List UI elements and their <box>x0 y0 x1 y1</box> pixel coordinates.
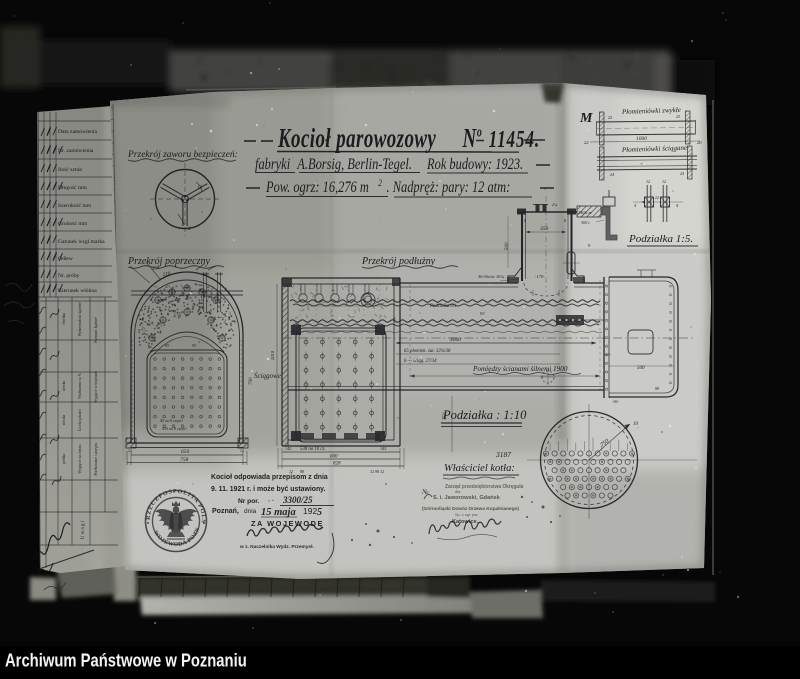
svg-text:M: M <box>579 111 593 126</box>
svg-text:Długość mm: Długość mm <box>58 185 87 191</box>
svg-text:o: o <box>477 124 482 140</box>
svg-text:-170-: -170- <box>535 274 545 279</box>
svg-text:12: 12 <box>128 448 132 453</box>
svg-text:538 na 10 cz.: 538 na 10 cz. <box>300 447 326 452</box>
svg-text:Przekrój podłużny: Przekrój podłużny <box>361 256 436 267</box>
svg-text:4000: 4000 <box>450 336 461 343</box>
svg-text:25: 25 <box>608 115 612 120</box>
svg-text:w z. Naczelnika Wydz. Przemysł: w z. Naczelnika Wydz. Przemysł. <box>239 544 314 550</box>
svg-text:145: 145 <box>380 446 386 451</box>
svg-text:36-Nitów 16¼: 36-Nitów 16¼ <box>478 274 504 279</box>
svg-text:Kierunek włókna: Kierunek włókna <box>58 288 97 294</box>
svg-text:Wydłużenie w %: Wydłużenie w % <box>78 372 82 399</box>
svg-text:. Nadpręż: pary: 12 atm:: . Nadpręż: pary: 12 atm: <box>387 179 511 197</box>
svg-text:Wytrzym. kg/mm²: Wytrzym. kg/mm² <box>94 317 98 343</box>
svg-text:próbka: próbka <box>62 454 66 464</box>
svg-text:Sp. z ogr. por.: Sp. z ogr. por. <box>455 513 478 517</box>
svg-text:Nr por.: Nr por. <box>238 498 259 505</box>
svg-text:Kocioł odpowiada przepisom z d: Kocioł odpowiada przepisom z dnia <box>211 474 328 481</box>
svg-text:12: 12 <box>646 179 650 184</box>
svg-text:65 płomien. śur. 33⅞/38: 65 płomien. śur. 33⅞/38 <box>404 349 451 354</box>
svg-text:Podziałka 1:5.: Podziałka 1:5. <box>628 233 693 245</box>
svg-text:24: 24 <box>610 172 614 177</box>
svg-text:2¼: 2¼ <box>552 202 557 207</box>
svg-text:2: 2 <box>378 177 382 188</box>
svg-text:Przekuwanie i przegin.: Przekuwanie i przegin. <box>94 442 98 475</box>
svg-text:Poznań,: Poznań, <box>212 508 239 515</box>
svg-text:95: 95 <box>192 343 196 348</box>
svg-text:12: 12 <box>240 448 244 453</box>
svg-text:240¾ m: 240¾ m <box>578 210 592 215</box>
svg-text:15: 15 <box>197 186 203 191</box>
svg-text:98: 98 <box>655 386 659 391</box>
svg-text:Wygięcie w stopniach: Wygięcie w stopniach <box>94 371 98 403</box>
svg-text:500: 500 <box>637 366 645 371</box>
svg-text:3300/25: 3300/25 <box>282 495 313 505</box>
svg-text:192: 192 <box>303 506 317 516</box>
svg-text:15 maja: 15 maja <box>261 507 296 518</box>
svg-text:-10-: -10- <box>604 352 612 357</box>
svg-text:S. i. Jaworowski, Gdańsk: S. i. Jaworowski, Gdańsk <box>433 495 501 501</box>
svg-text:A.Borsig, Berlin-Tegel.: A.Borsig, Berlin-Tegel. <box>296 156 412 174</box>
svg-text:300 t: 300 t <box>581 220 590 225</box>
svg-text:5: 5 <box>317 507 322 518</box>
svg-text:1000: 1000 <box>636 136 647 142</box>
svg-text:430 na 8 częśći: 430 na 8 częśći <box>162 426 187 431</box>
svg-text:Przekrój poprzeczny: Przekrój poprzeczny <box>127 256 210 267</box>
svg-text:500: 500 <box>505 242 510 250</box>
svg-text:zlewka: zlewka <box>62 415 66 426</box>
svg-text:4: 4 <box>634 203 636 208</box>
svg-text:(Górnośląski Dowóz Drzewa Kopa: (Górnośląski Dowóz Drzewa Kopalnianego) <box>422 506 519 512</box>
svg-text:-36-: -36- <box>612 399 619 404</box>
svg-text:9. 11. 1921 r. i może być usta: 9. 11. 1921 r. i może być ustawiony. <box>211 486 325 493</box>
svg-text:Wygięcie na zimno: Wygięcie na zimno <box>78 444 82 473</box>
svg-text:828: 828 <box>333 462 341 467</box>
svg-text:95: 95 <box>165 343 169 348</box>
svg-text:4: 4 <box>676 203 678 208</box>
svg-text:U w a g i: U w a g i <box>81 520 86 539</box>
svg-text:20: 20 <box>697 140 702 145</box>
svg-text:Szerokość mm: Szerokość mm <box>58 203 92 209</box>
svg-text:dla: dla <box>455 489 461 494</box>
svg-text:Data zamówienia: Data zamówienia <box>58 129 97 135</box>
svg-text:11454.: 11454. <box>489 125 540 153</box>
svg-text:N: N <box>462 124 477 154</box>
svg-text:8: 8 <box>524 218 526 223</box>
svg-text:650: 650 <box>181 449 190 455</box>
svg-text:22: 22 <box>655 195 659 200</box>
svg-text:Nr. zamówienia: Nr. zamówienia <box>58 148 94 154</box>
svg-text:Gatunek wzgl.marka: Gatunek wzgl.marka <box>58 239 105 245</box>
svg-text:Liczba jakości: Liczba jakości <box>78 409 82 431</box>
svg-text:Wytrzymałość kg/mm²: Wytrzymałość kg/mm² <box>78 301 82 337</box>
svg-text:8: 8 <box>564 218 566 223</box>
svg-text:Podziałka 6¼: Podziałka 6¼ <box>429 304 457 309</box>
svg-text:10: 10 <box>633 422 639 427</box>
svg-text:2010: 2010 <box>270 350 275 360</box>
svg-text:45 na 8 częśći: 45 na 8 częśći <box>160 418 183 423</box>
svg-text:Archiwum Państwowe w Poznaniu: Archiwum Państwowe w Poznaniu <box>5 650 247 671</box>
svg-text:Grubość mm: Grubość mm <box>58 221 88 227</box>
svg-text:zlewka: zlewka <box>62 381 66 392</box>
svg-text:25: 25 <box>676 114 680 119</box>
svg-text:3187: 3187 <box>495 450 511 459</box>
svg-text:Ilość sztuk: Ilość sztuk <box>58 167 82 173</box>
svg-text:Właściciel kotła:: Właściciel kotła: <box>444 463 515 474</box>
svg-text:obróbka: obróbka <box>62 313 66 325</box>
svg-text:12: 12 <box>662 179 666 184</box>
svg-text:Podziałka : 1:10: Podziałka : 1:10 <box>442 408 527 422</box>
svg-text:24: 24 <box>680 171 684 176</box>
svg-text:12 98 12: 12 98 12 <box>370 469 384 474</box>
svg-text:6 — ściąg. 27/34: 6 — ściąg. 27/34 <box>404 359 437 364</box>
svg-text:Kocioł parowozowy: Kocioł parowozowy <box>277 124 436 154</box>
svg-text:dnia: dnia <box>244 508 257 515</box>
svg-text:758: 758 <box>180 457 189 463</box>
svg-text:350: 350 <box>539 226 549 232</box>
svg-text:600: 600 <box>330 455 338 460</box>
svg-text:142: 142 <box>285 446 291 451</box>
svg-text:Pow. ogrz: 16,276 m: Pow. ogrz: 16,276 m <box>265 179 369 197</box>
svg-text:2: 2 <box>188 226 191 232</box>
svg-text:fabryki: fabryki <box>255 156 290 174</box>
svg-text:×: × <box>640 161 643 166</box>
svg-text:Pomiędzy ścianami śilnemi 1900: Pomiędzy ścianami śilnemi 1900 <box>472 365 568 373</box>
svg-text:Rok budowy: 1923.: Rok budowy: 1923. <box>426 156 523 174</box>
svg-text:22: 22 <box>584 140 589 145</box>
svg-text:Nr. próby: Nr. próby <box>58 273 80 279</box>
svg-text:93: 93 <box>480 311 485 316</box>
